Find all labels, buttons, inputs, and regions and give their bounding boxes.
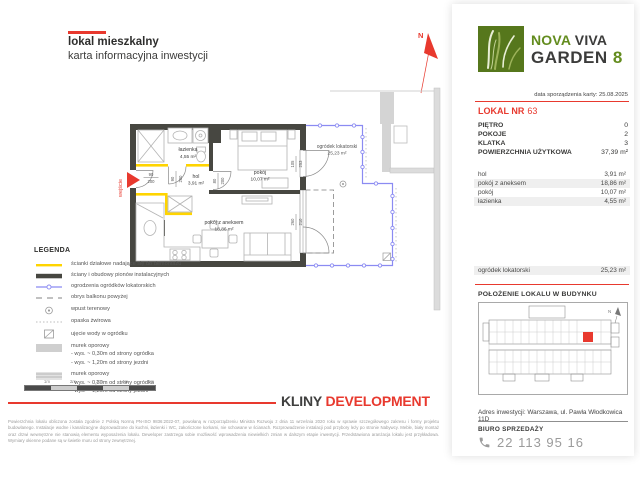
developer-logo: KLINY DEVELOPMENT bbox=[281, 393, 430, 409]
legal-disclaimer: Powierzchnia lokalu obliczona została zg… bbox=[8, 419, 439, 445]
svg-text:200: 200 bbox=[220, 177, 225, 185]
room-label-bathroom: łazienka bbox=[178, 147, 197, 153]
chair bbox=[229, 235, 237, 243]
legend-item: opaska żwirowa bbox=[34, 318, 249, 326]
legend-item: obrys balkonu powyżej bbox=[34, 294, 249, 302]
brand-logo-icon bbox=[478, 26, 524, 72]
table-row: łazienka4,55 m² bbox=[474, 197, 630, 206]
table-row: hol3,91 m² bbox=[474, 170, 630, 179]
developer-name: KLINY bbox=[281, 393, 322, 409]
drain-symbol-icon bbox=[34, 306, 64, 315]
brand-word-nova: NOVA bbox=[531, 32, 571, 48]
water-tap-icon bbox=[383, 253, 391, 261]
scale-bar: 1m 2m 3m 4m 5m bbox=[24, 379, 156, 391]
attribute-row: PIĘTRO0 bbox=[478, 121, 628, 130]
unit-attributes: PIĘTRO0 POKOJE2 KLATKA3 POWIERZCHNIA UŻY… bbox=[478, 121, 628, 157]
legend-item: murek oporowy - wys. ~ 0,30m od strony o… bbox=[34, 343, 249, 368]
legend-item: ściany i obudowy pionów instalacyjnych bbox=[34, 272, 249, 280]
room-area-hall: 3,91 m² bbox=[188, 181, 205, 187]
retaining-wall-solid-icon bbox=[34, 343, 64, 353]
card-date: data sporządzenia karty: 25.08.2025 bbox=[478, 92, 628, 98]
brand-number: 8 bbox=[613, 48, 623, 67]
sales-office-label: BIURO SPRZEDAŻY bbox=[478, 426, 544, 433]
retaining-wall bbox=[434, 88, 440, 310]
minimap-north-arrow-icon: N bbox=[608, 307, 621, 323]
yellow-partition-line-icon bbox=[34, 262, 64, 268]
unit-number-value: 63 bbox=[527, 106, 537, 116]
garden-area: 25,23 m² bbox=[328, 151, 347, 157]
svg-text:90: 90 bbox=[170, 176, 175, 181]
scale-label: 3m bbox=[76, 379, 102, 384]
gravel-line-icon bbox=[34, 319, 64, 325]
svg-text:200: 200 bbox=[148, 179, 156, 184]
north-label: N bbox=[418, 31, 423, 40]
table-row: pokój10,07 m² bbox=[474, 188, 630, 197]
legend: LEGENDA ścianki działowe nadające się do… bbox=[34, 247, 249, 399]
developer-suffix: DEVELOPMENT bbox=[325, 393, 429, 409]
legend-item: wpust terenowy bbox=[34, 306, 249, 315]
north-arrow-icon: N bbox=[418, 31, 438, 93]
svg-text:253: 253 bbox=[298, 160, 303, 168]
brand-word-viva: VIVA bbox=[575, 32, 607, 48]
table-row: ogródek lokatorski25,23 m² bbox=[474, 266, 630, 275]
scale-label: 5m bbox=[128, 379, 154, 384]
nightstand bbox=[230, 130, 237, 139]
location-heading: POŁOŻENIE LOKALU W BUDYNKU bbox=[478, 291, 597, 298]
garden-area-row: ogródek lokatorski25,23 m² bbox=[474, 266, 630, 275]
brand-word-garden: GARDEN bbox=[531, 48, 608, 67]
card-divider-red bbox=[475, 101, 629, 102]
retaining-wall bbox=[390, 168, 434, 173]
svg-text:105: 105 bbox=[290, 160, 295, 168]
svg-text:210: 210 bbox=[298, 218, 303, 226]
svg-text:200: 200 bbox=[178, 175, 183, 183]
room-label-living: pokój z aneksem bbox=[205, 220, 244, 226]
scale-label: 2m bbox=[50, 379, 76, 384]
legend-title: LEGENDA bbox=[34, 247, 249, 254]
brand-logo: NOVA VIVA GARDEN 8 bbox=[478, 26, 623, 72]
garden-fence-line-icon bbox=[34, 284, 64, 290]
phone-row: 22 113 95 16 bbox=[478, 435, 584, 450]
balcony-outline bbox=[306, 190, 334, 253]
dashed-line-icon bbox=[34, 295, 64, 301]
card-divider-red bbox=[475, 284, 629, 285]
drain-icon bbox=[340, 181, 346, 187]
svg-text:80: 80 bbox=[212, 178, 217, 183]
chair bbox=[193, 235, 201, 243]
table-row: pokój z aneksem18,86 m² bbox=[474, 179, 630, 188]
legend-item: ogrodzenia ogródków lokatorskich bbox=[34, 283, 249, 291]
room-area-living: 18,86 m² bbox=[215, 227, 234, 233]
unit-number-label: LOKAL NR bbox=[478, 106, 524, 116]
dark-wall-bar-icon bbox=[34, 273, 64, 279]
garden-label: ogródek lokatorski bbox=[317, 144, 358, 150]
scale-label: 4m bbox=[102, 379, 128, 384]
context-structures bbox=[330, 88, 440, 310]
unit-number-heading: LOKAL NR63 bbox=[478, 106, 537, 116]
svg-text:260: 260 bbox=[290, 218, 295, 226]
kitchen-sink bbox=[144, 221, 156, 236]
attribute-row: POKOJE2 bbox=[478, 130, 628, 139]
info-card: NOVA VIVA GARDEN 8 data sporządzenia kar… bbox=[452, 4, 634, 456]
scale-label: 1m bbox=[24, 379, 50, 384]
building-location-map: N bbox=[478, 302, 628, 395]
dining-table bbox=[202, 230, 228, 248]
nightstand bbox=[288, 130, 295, 139]
room-area-room: 10,07 m² bbox=[251, 177, 270, 183]
room-area-table: hol3,91 m² pokój z aneksem18,86 m² pokój… bbox=[474, 170, 630, 206]
attribute-row: KLATKA3 bbox=[478, 139, 628, 148]
entrance-label: wejście bbox=[118, 179, 124, 198]
legend-item: ścianki działowe nadające się do demonta… bbox=[34, 261, 249, 269]
unit-location-marker bbox=[583, 332, 593, 342]
footer-divider bbox=[8, 402, 276, 404]
room-label-hall: hol bbox=[193, 174, 200, 180]
phone-number: 22 113 95 16 bbox=[497, 435, 584, 450]
water-intake-symbol-icon bbox=[34, 329, 64, 339]
svg-text:N: N bbox=[608, 309, 611, 314]
room-area-bathroom: 4,55 m² bbox=[180, 154, 197, 160]
legend-item: ujęcie wody w ogródku bbox=[34, 329, 249, 339]
svg-text:90: 90 bbox=[149, 172, 154, 177]
phone-icon bbox=[478, 436, 491, 449]
card-divider-gray bbox=[478, 421, 628, 422]
room-label-room: pokój bbox=[254, 170, 266, 176]
attribute-row: POWIERZCHNIA UŻYTKOWA37,39 m² bbox=[478, 148, 628, 157]
